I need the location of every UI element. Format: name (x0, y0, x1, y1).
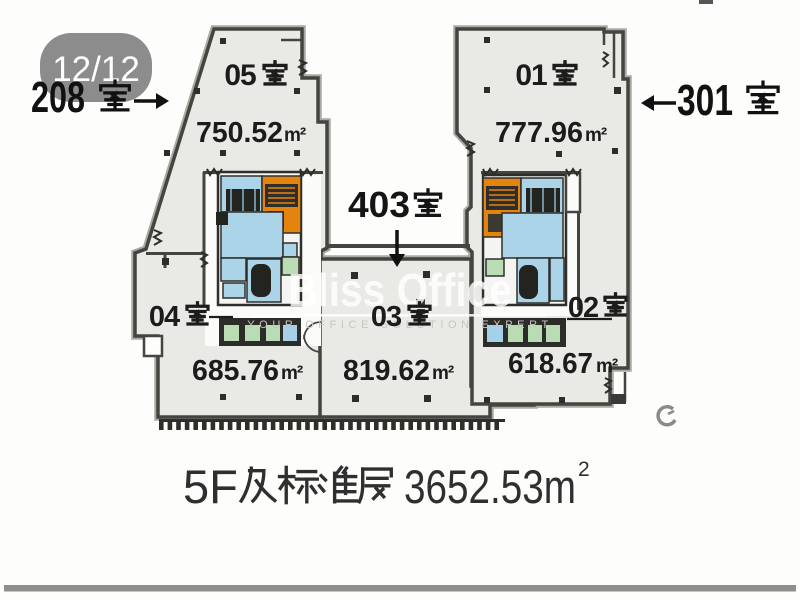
svg-text:m²: m² (596, 356, 618, 377)
svg-text:04: 04 (149, 301, 180, 333)
svg-text:m²: m² (281, 363, 303, 384)
svg-text:750.52: 750.52 (196, 117, 283, 149)
svg-text:2: 2 (578, 458, 590, 481)
svg-text:03: 03 (371, 301, 402, 333)
svg-text:01: 01 (515, 59, 547, 92)
svg-text:m²: m² (284, 125, 306, 146)
svg-text:403: 403 (348, 184, 410, 225)
svg-text:777.96: 777.96 (495, 117, 583, 149)
svg-text:m²: m² (585, 125, 607, 146)
svg-text:208: 208 (31, 73, 85, 122)
svg-text:3652.53m: 3652.53m (404, 460, 576, 513)
svg-text:m²: m² (432, 363, 454, 384)
svg-text:05: 05 (224, 59, 256, 92)
svg-text:301: 301 (677, 76, 733, 125)
svg-text:685.76: 685.76 (192, 355, 279, 387)
svg-text:819.62: 819.62 (343, 355, 430, 387)
svg-text:5F: 5F (183, 460, 238, 513)
svg-text:618.67: 618.67 (508, 348, 593, 380)
